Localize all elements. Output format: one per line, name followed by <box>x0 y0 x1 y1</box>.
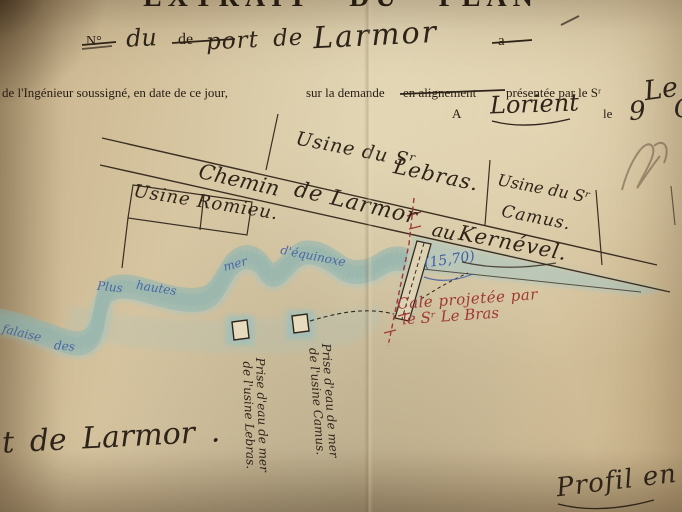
archival-plan-photo: EXTRAIT DU PLAN N° du de port de Larmor … <box>0 0 682 512</box>
photo-vignette <box>0 0 682 512</box>
